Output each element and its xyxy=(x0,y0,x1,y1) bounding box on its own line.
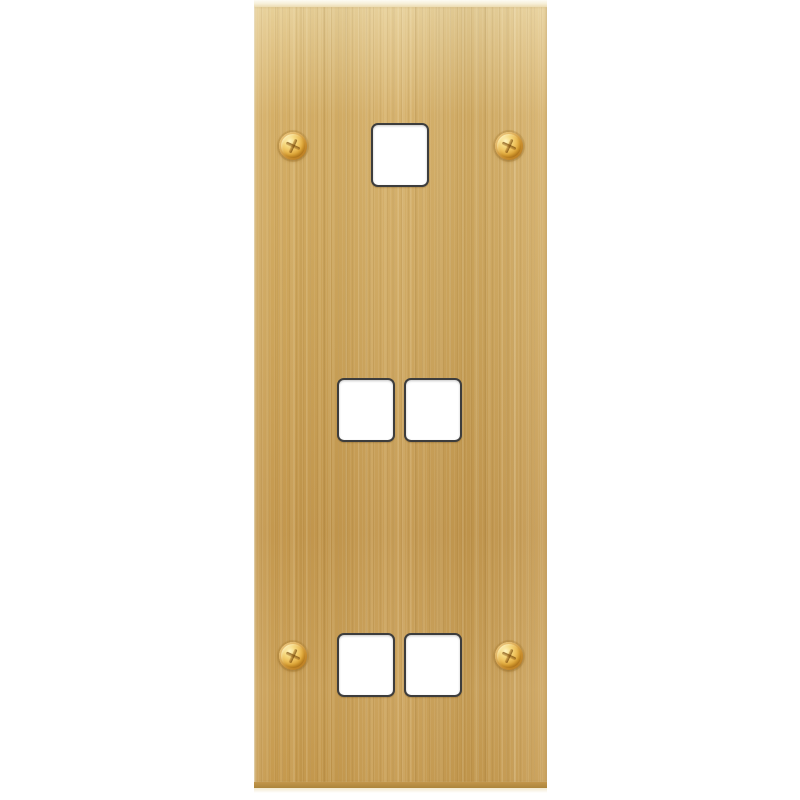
screw-top-right xyxy=(495,132,523,160)
screw-bottom-left xyxy=(279,642,307,670)
plate-ground-shadow xyxy=(254,788,547,793)
plate-top-bevel-edge xyxy=(254,0,547,7)
screw-bottom-right xyxy=(495,642,523,670)
module-cutout-bottom-left xyxy=(337,633,395,697)
module-cutout-bottom-right xyxy=(404,633,462,697)
product-photo-canvas xyxy=(0,0,800,800)
screw-top-left xyxy=(279,132,307,160)
wall-plate xyxy=(254,0,547,788)
module-cutout-middle-left xyxy=(337,378,395,442)
module-cutout-middle-right xyxy=(404,378,462,442)
module-cutout-top xyxy=(371,123,429,187)
